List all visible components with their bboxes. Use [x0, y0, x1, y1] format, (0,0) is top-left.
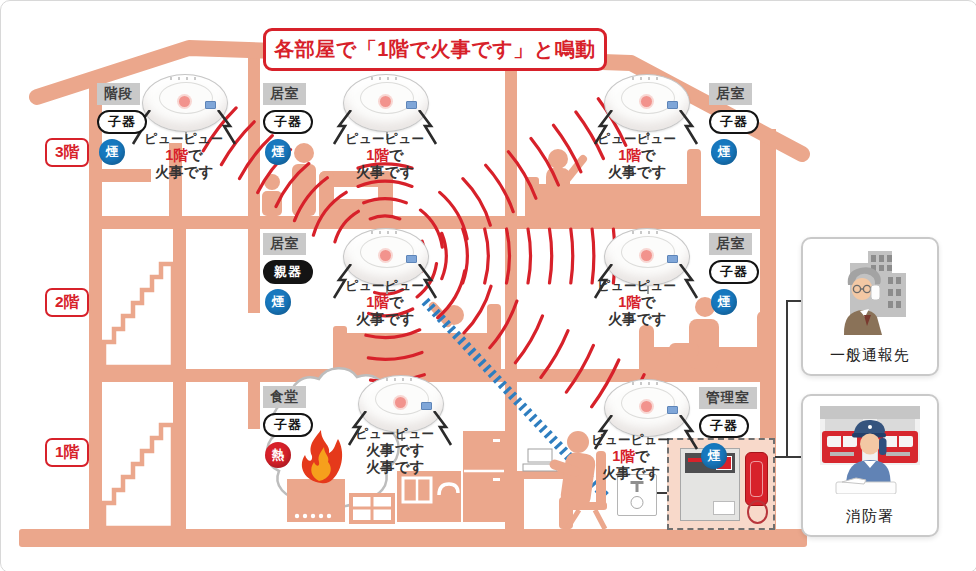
- alarm-message-line: 1階で: [315, 294, 455, 311]
- fire-alarm-system-diagram: 各部屋で「1階で火事です」と鳴動 3階 2階 1階: [0, 0, 976, 571]
- alarm-message-line: 1階で: [315, 147, 455, 164]
- contact-label-general: 一般通報先: [830, 346, 910, 365]
- floor-label-1f: 1階: [45, 438, 89, 467]
- alarm-message-line: 火事です: [325, 459, 465, 476]
- floor-label-2f: 2階: [45, 288, 89, 317]
- alarm-message-line: 火事です: [114, 164, 254, 181]
- alarm-message-line: ピューピュー: [561, 433, 701, 447]
- alarm-message: ピューピュー1階で火事です: [567, 279, 707, 327]
- alarm-message-line: ピューピュー: [114, 132, 254, 146]
- antenna-icon: [636, 481, 639, 492]
- alarm-message-line: ピューピュー: [567, 132, 707, 146]
- alarm-message-line: 火事です: [567, 311, 707, 328]
- detector-labels: 居室親器煙: [263, 233, 313, 315]
- unit-type-pill: 子器: [709, 260, 759, 284]
- dev-chip: [667, 406, 678, 414]
- unit-type-pill: 子器: [263, 110, 313, 134]
- unit-type-pill: 子器: [263, 413, 313, 437]
- room-name-tag: 食堂: [263, 386, 306, 408]
- alarm-message: ピューピュー1階で火事です: [561, 433, 701, 481]
- dev-chip: [205, 101, 216, 109]
- alarm-message-line: ピューピュー: [567, 279, 707, 293]
- alarm-message-line: 1階で: [567, 147, 707, 164]
- room-name-tag: 管理室: [699, 387, 757, 409]
- dev-chip: [667, 255, 678, 263]
- phone-cord: [747, 500, 768, 524]
- sensor-type-badge: 煙: [701, 443, 727, 469]
- alarm-message: ピューピュー火事です火事です: [325, 427, 465, 475]
- alarm-message: ピューピュー1階で火事です: [114, 132, 254, 180]
- alarm-message-line: ピューピュー: [315, 132, 455, 146]
- unit-type-pill: 子器: [97, 110, 147, 134]
- sensor-type-badge: 煙: [711, 289, 737, 315]
- alarm-message-line: ピューピュー: [325, 427, 465, 441]
- floor-label-3f: 3階: [45, 138, 89, 167]
- alarm-message: ピューピュー1階で火事です: [567, 132, 707, 180]
- alarm-message-line: ピューピュー: [315, 279, 455, 293]
- sensor-type-badge: 煙: [265, 289, 291, 315]
- detector-labels: 管理室子器煙: [699, 387, 757, 469]
- room-name-tag: 階段: [97, 83, 140, 105]
- sensor-type-badge: 煙: [711, 139, 737, 165]
- detector-labels: 居室子器煙: [263, 83, 313, 165]
- detector-labels: 居室子器煙: [709, 83, 759, 165]
- alarm-message-line: 火事です: [325, 442, 465, 459]
- dev-chip: [406, 101, 417, 109]
- dev-dot: [641, 250, 652, 261]
- dev-dot: [380, 250, 391, 261]
- dev-dot: [380, 96, 391, 107]
- dev-dot: [179, 96, 190, 107]
- dev-chip: [667, 101, 678, 109]
- transmitter-button: [631, 496, 644, 509]
- unit-type-pill: 親器: [263, 260, 313, 284]
- room-name-tag: 居室: [709, 83, 752, 105]
- dev-dot: [641, 401, 652, 412]
- dev-dot: [641, 96, 652, 107]
- alarm-message-line: 火事です: [561, 465, 701, 482]
- alarm-message-line: 1階で: [567, 294, 707, 311]
- sensor-type-badge: 熱: [265, 442, 291, 468]
- alarm-message-line: 1階で: [561, 448, 701, 465]
- room-name-tag: 居室: [709, 233, 752, 255]
- dev-chip: [421, 402, 432, 410]
- fire-station-icon: [818, 404, 922, 494]
- alarm-message: ピューピュー1階で火事です: [315, 132, 455, 180]
- alarm-message-line: 火事です: [315, 164, 455, 181]
- citizen-phone-icon: [822, 247, 918, 335]
- room-name-tag: 居室: [263, 233, 306, 255]
- alarm-message-line: 1階で: [114, 147, 254, 164]
- diagram-title: 各部屋で「1階で火事です」と鳴動: [263, 28, 607, 71]
- panel-nameplate: [713, 501, 735, 515]
- contact-box-general: 一般通報先: [801, 237, 939, 376]
- sensor-type-badge: 煙: [265, 139, 291, 165]
- detector-labels: 居室子器煙: [709, 233, 759, 315]
- alarm-message: ピューピュー1階で火事です: [315, 279, 455, 327]
- detector-labels: 食堂子器熱: [263, 386, 313, 468]
- unit-type-pill: 子器: [699, 414, 749, 438]
- alarm-message-line: 火事です: [315, 311, 455, 328]
- dev-chip: [406, 255, 417, 263]
- contact-box-fire-dept: 消防署: [801, 394, 939, 537]
- contact-label-fire-dept: 消防署: [846, 507, 894, 526]
- unit-type-pill: 子器: [709, 110, 759, 134]
- dev-dot: [395, 397, 406, 408]
- room-name-tag: 居室: [263, 83, 306, 105]
- alarm-message-line: 火事です: [567, 164, 707, 181]
